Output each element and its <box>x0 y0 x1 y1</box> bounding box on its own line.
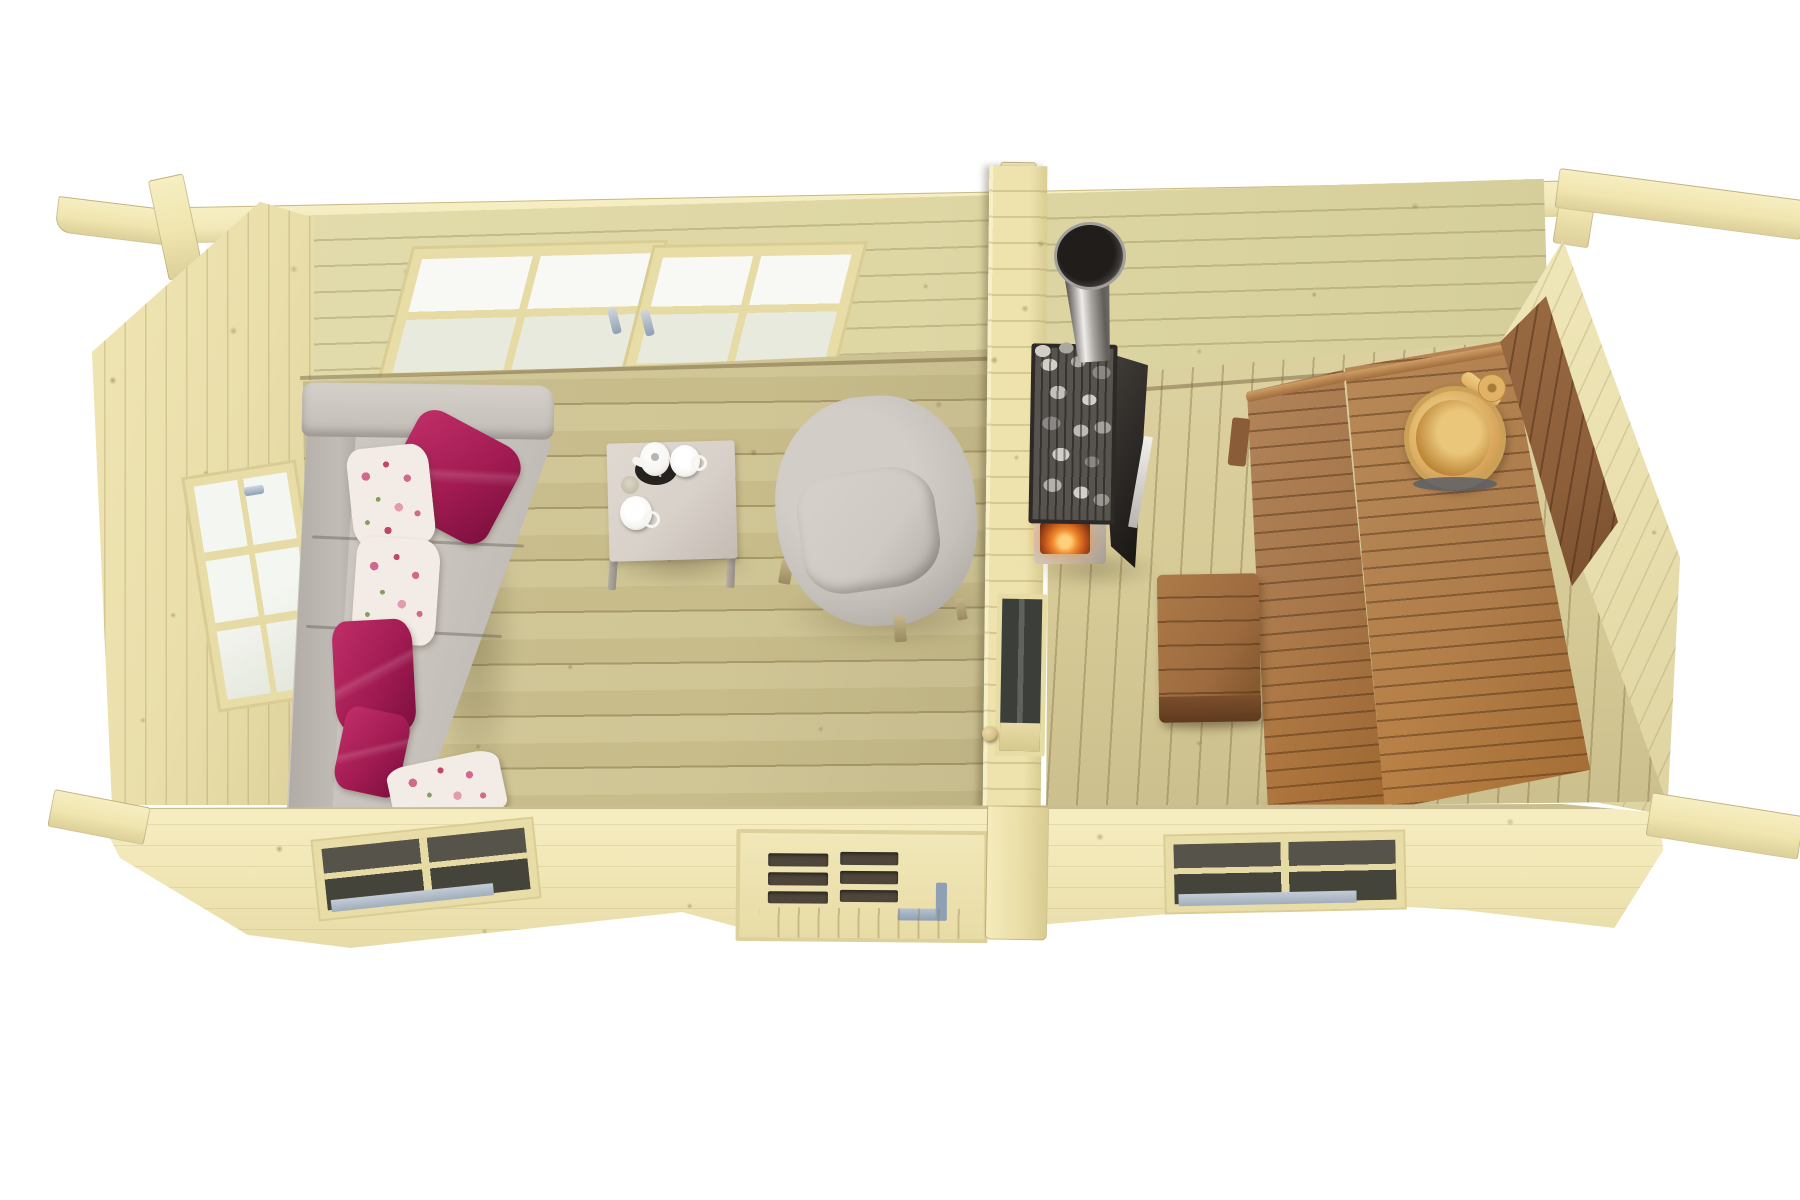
ladle-end <box>1478 374 1506 402</box>
door-glass-pane <box>840 871 898 885</box>
front-window-sauna <box>1165 832 1405 913</box>
front-door <box>736 829 989 943</box>
window-sill <box>1179 891 1357 907</box>
sauna-stool <box>1157 573 1262 723</box>
door-handle-icon <box>898 908 947 920</box>
partition-end-log <box>985 805 1049 940</box>
chimney-opening <box>1054 222 1126 290</box>
door-glass-pane <box>840 890 898 903</box>
cup <box>620 496 652 530</box>
purlin-overhang-front-right <box>1646 792 1800 860</box>
door-glass-pane <box>768 872 828 886</box>
door-handle-icon <box>936 883 947 921</box>
stove-fire-window <box>1040 522 1090 554</box>
back-wall-window-left <box>380 243 665 383</box>
mug <box>670 445 700 477</box>
armchair-leg <box>893 616 907 643</box>
stove-stone-basket <box>1028 343 1117 524</box>
teapot <box>640 442 670 476</box>
floral-pillow <box>345 442 437 550</box>
purlin-overhang-back-right <box>1554 168 1800 240</box>
back-wall-window-right <box>624 244 864 374</box>
sauna-door-knob <box>982 726 997 741</box>
cabin-render <box>0 0 1800 1200</box>
door-glass-pane <box>768 853 828 867</box>
door-glass-pane <box>840 852 898 866</box>
door-glass-pane <box>768 891 828 904</box>
sauna-glass-door <box>995 594 1048 757</box>
glass <box>621 476 639 494</box>
